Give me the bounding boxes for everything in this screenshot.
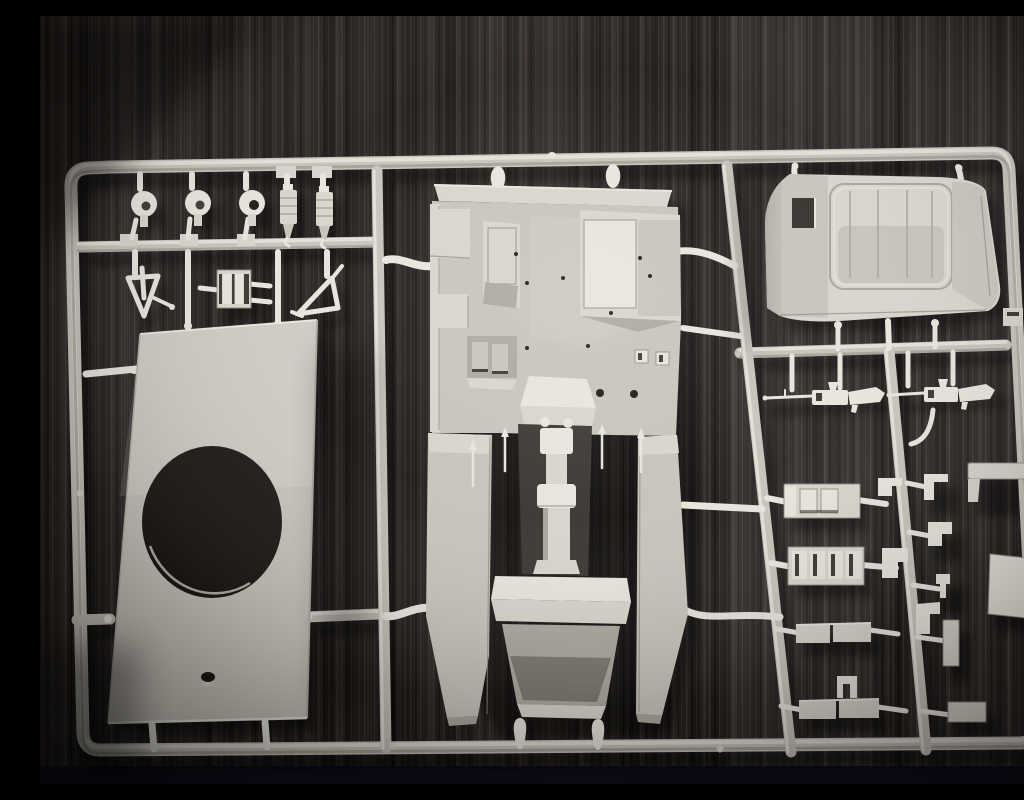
sprue-photo-canvas: Close-up photo of a light grey injection… bbox=[40, 16, 1024, 784]
sprue-photo: Close-up photo of a light grey injection… bbox=[40, 16, 1024, 784]
lighting-overlay bbox=[40, 16, 1024, 784]
